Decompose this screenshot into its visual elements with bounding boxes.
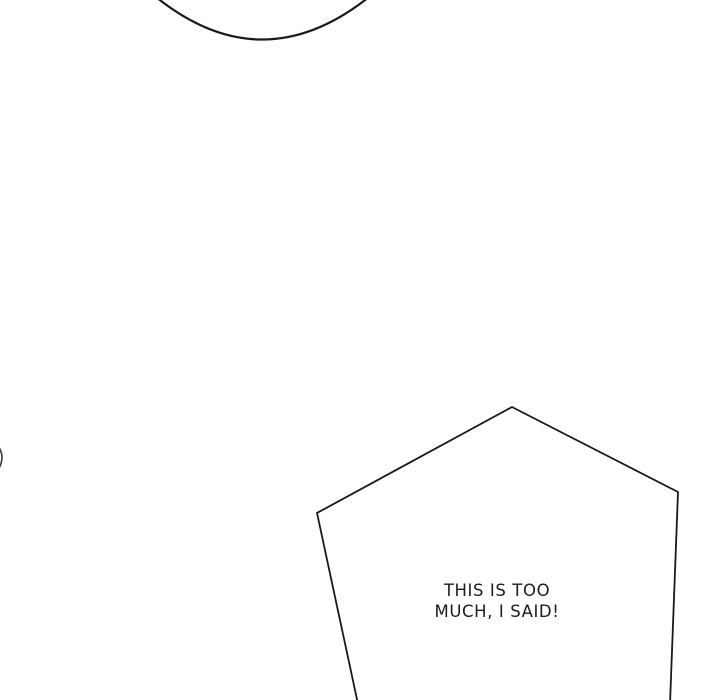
speech-text-line1: THIS IS TOO <box>376 580 618 601</box>
left-edge-art-stroke <box>0 446 2 470</box>
comic-panel: THIS IS TOO MUCH, I SAID! <box>0 0 720 700</box>
speech-bubble-text: THIS IS TOO MUCH, I SAID! <box>376 580 618 622</box>
top-speech-bubble-bottom-curve <box>156 0 369 40</box>
pentagon-speech-bubble <box>317 407 678 700</box>
speech-text-line2: MUCH, I SAID! <box>376 601 618 622</box>
